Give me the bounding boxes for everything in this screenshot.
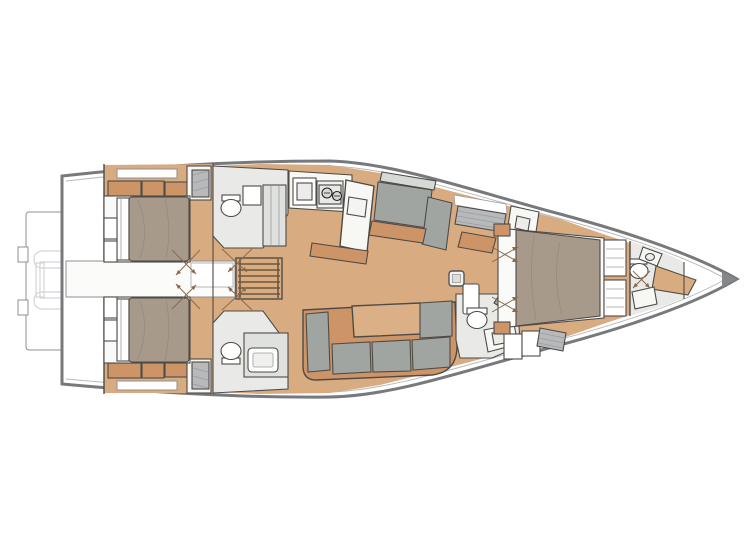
locker-panel [263,185,286,246]
wardrobe-vent [187,166,211,200]
yacht-floor-plan: Sailing yacht interior layout plan (deck… [0,0,746,559]
swim-platform [18,212,64,350]
hull-lockers [108,181,187,198]
nightstand-port [494,322,510,334]
hull-window [117,169,177,178]
sofa-cushion-right [420,301,452,338]
bed-blanket [516,230,600,326]
mast-post [449,271,464,286]
saloon-table [352,303,422,337]
sofa-cushion-left [306,312,330,372]
island-sink [347,197,367,217]
companionway-stairs [236,258,282,299]
toilet [467,312,487,329]
sofa-port [303,301,457,380]
wardrobe-port [504,331,540,359]
toilet [221,343,241,360]
engine-hatch-lid [191,263,233,287]
settee-cushion-corner [422,197,452,250]
head-sink [646,254,655,261]
sofa-cushion-2 [372,340,411,372]
sofa-cushion-3 [412,337,450,370]
stove-two-burners [317,181,343,208]
head-sink [243,186,261,205]
toilet [221,200,241,217]
sofa-cushion-1 [332,342,371,374]
bed-blanket [129,197,189,261]
settee-cushion-long [374,182,432,228]
bed-pillow [117,198,129,260]
head-starboard-aft [213,166,288,248]
nightstand-starboard [494,224,510,236]
